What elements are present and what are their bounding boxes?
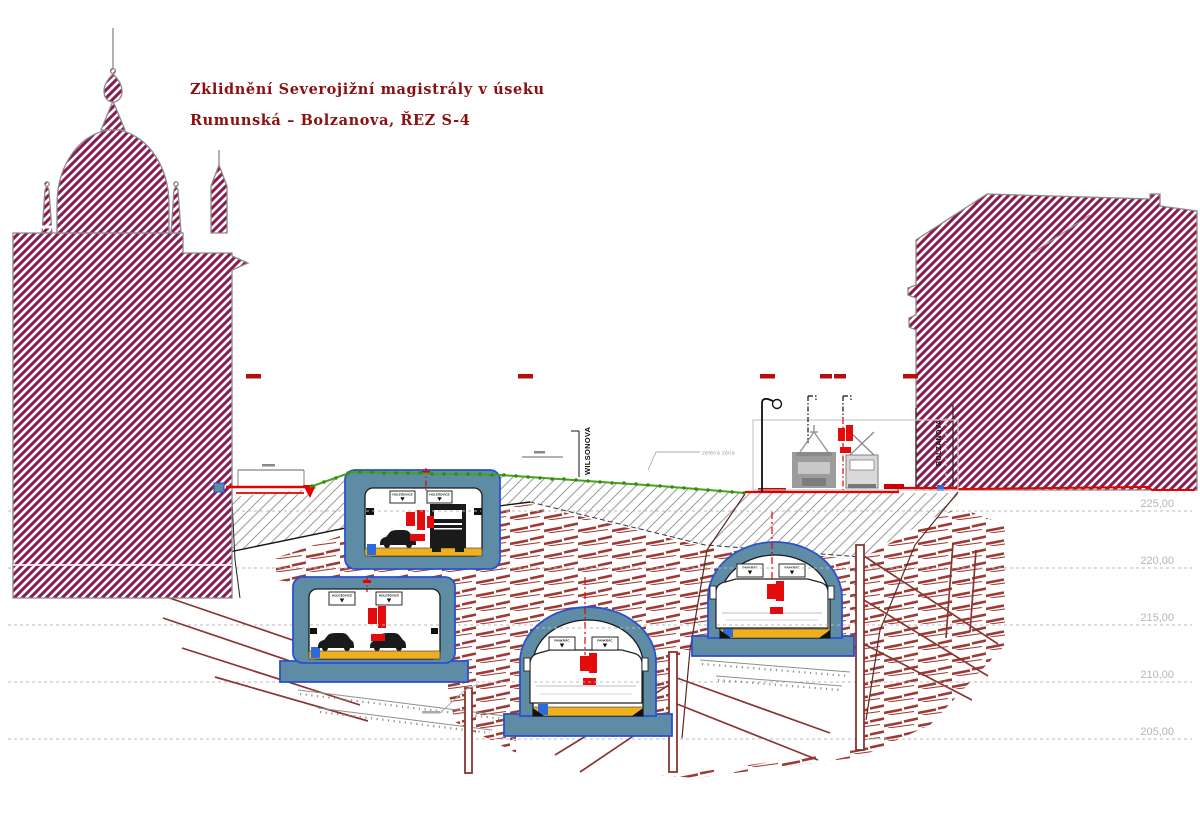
street-label-bolzanova: BOLZANOVA	[936, 419, 943, 466]
sign-text: PANKRÁC	[784, 565, 800, 570]
drawing-title-line1: Zklidnění Severojižní magistrály v úseku	[190, 81, 545, 98]
pile-wall-right	[856, 545, 864, 750]
elevation-label: 220,00	[1140, 555, 1174, 567]
tunnel-base-slab	[280, 661, 468, 682]
tunnel-roadway	[309, 651, 440, 659]
overhead-sign: PANKRÁC	[592, 637, 618, 650]
centerline-tick	[363, 580, 371, 583]
left-building-mast-ball	[111, 69, 116, 74]
excavation-under-middle-arch	[516, 736, 677, 778]
pile-wall-middle	[669, 652, 677, 772]
street-lamp-head	[773, 400, 782, 409]
elevation-label: 210,00	[1140, 669, 1174, 681]
overhead-sign: HOLEŠOVICE	[329, 592, 355, 605]
overhead-sign: PANKRÁC	[737, 564, 763, 577]
tunnel-roadway	[365, 548, 482, 556]
dimension-label-mark	[534, 451, 545, 454]
platform-edge	[884, 484, 904, 489]
pinnacle-ball	[45, 182, 49, 186]
pile-wall-left	[465, 688, 472, 773]
sign-text: PANKRÁC	[554, 638, 570, 643]
overhead-sign: HOLEŠOVICE	[376, 592, 402, 605]
tunnel-roadway	[533, 707, 643, 716]
elevation-label: 225,00	[1140, 498, 1174, 510]
elevation-label: 205,00	[1140, 726, 1174, 738]
sign-text: PANKRÁC	[742, 565, 758, 570]
drainage-duct	[367, 544, 376, 555]
sign-text: HOLEŠOVICE	[429, 491, 449, 496]
drawing-canvas: 225,00 220,00 215,00 210,00 205,00	[0, 0, 1200, 813]
dimension-label-mark	[262, 464, 275, 467]
street-label-wilsonova: WILSONOVA	[583, 426, 592, 475]
surface-note-label: zelená zóna	[702, 450, 735, 457]
curb-block	[214, 483, 224, 492]
overhead-sign: PANKRÁC	[549, 637, 575, 650]
tunnel-box-lower: HOLEŠOVICE HOLEŠOVICE	[280, 577, 468, 682]
left-building-block	[13, 233, 248, 598]
tunnel-base-slab	[692, 636, 854, 656]
drawing-title-line2: Rumunská – Bolzanova, ŘEZ S-4	[190, 111, 470, 129]
overhead-sign: HOLEŠOVICE	[427, 491, 452, 503]
sign-text: HOLEŠOVICE	[332, 593, 352, 598]
overhead-sign: PANKRÁC	[779, 564, 805, 577]
right-building-block	[908, 194, 1197, 490]
tunnel-base-slab	[504, 714, 672, 736]
wall-bracket	[310, 628, 317, 634]
truck-silhouette	[430, 504, 466, 552]
pinnacle-ball	[174, 182, 178, 186]
tunnel-roadway	[720, 629, 830, 638]
overhead-sign: HOLEŠOVICE	[390, 491, 415, 503]
right-building: BOLZANOVA	[908, 194, 1197, 490]
sign-text: HOLEŠOVICE	[379, 593, 399, 598]
drainage-duct	[311, 647, 320, 658]
tunnel-box-upper: HOLEŠOVICE HOLEŠOVICE	[345, 468, 500, 569]
sign-text: HOLEŠOVICE	[392, 491, 412, 496]
sign-text: PANKRÁC	[597, 638, 613, 643]
elevation-label: 215,00	[1140, 612, 1174, 624]
wall-bracket	[431, 628, 438, 634]
